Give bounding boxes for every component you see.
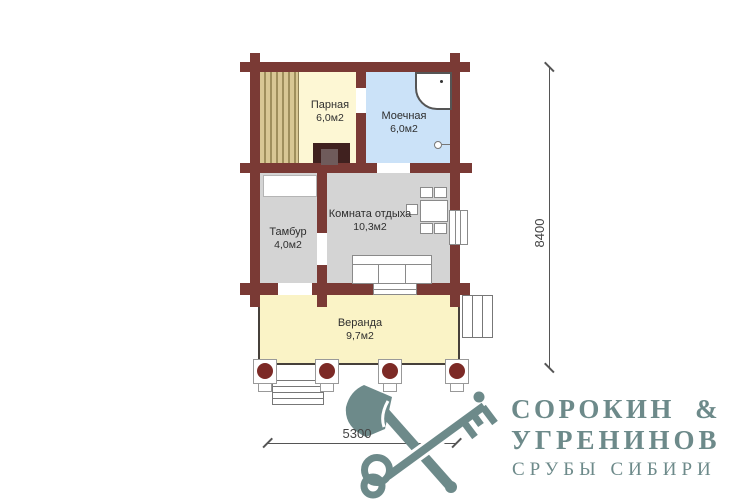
room-name: Комната отдыха bbox=[310, 208, 430, 221]
logo-tagline: СРУБЫ СИБИРИ bbox=[512, 459, 716, 481]
room-label-parnaya: Парная 6,0м2 bbox=[290, 99, 370, 125]
tambur-closet bbox=[263, 175, 317, 197]
drain-pipe-line bbox=[442, 144, 450, 145]
dimension-value-vertical: 8400 bbox=[532, 203, 546, 263]
window-komnata-right bbox=[449, 210, 468, 245]
door-moechnaya-komnata bbox=[377, 163, 410, 173]
room-label-komnata: Комната отдыха 10,3м2 bbox=[310, 208, 430, 234]
room-area: 6,0м2 bbox=[364, 123, 444, 136]
room-name: Веранда bbox=[320, 317, 400, 330]
veranda-column-2-post bbox=[319, 363, 335, 379]
wall-bottom bbox=[240, 283, 470, 295]
window-komnata-veranda bbox=[373, 283, 417, 295]
veranda-column-1-post bbox=[257, 363, 273, 379]
floor-drain bbox=[434, 141, 442, 149]
wall-middle bbox=[240, 163, 472, 173]
wall-top bbox=[240, 62, 470, 72]
steps-side-3 bbox=[482, 295, 493, 338]
room-label-moechnaya: Моечная 6,0м2 bbox=[364, 110, 444, 136]
room-area: 4,0м2 bbox=[248, 239, 328, 252]
shower-head-dot bbox=[440, 80, 443, 83]
veranda-column-2-tab bbox=[320, 383, 334, 392]
veranda-column-4-post bbox=[449, 363, 465, 379]
logo-name-line1: СОРОКИН & bbox=[511, 394, 721, 425]
wall-left bbox=[250, 53, 260, 307]
logo-icon bbox=[338, 383, 523, 502]
sofa bbox=[352, 255, 432, 284]
logo-name-line2: УГРЕНИНОВ bbox=[511, 425, 721, 456]
veranda-column-3-post bbox=[382, 363, 398, 379]
room-name: Моечная bbox=[364, 110, 444, 123]
room-label-veranda: Веранда 9,7м2 bbox=[320, 317, 400, 343]
room-area: 9,7м2 bbox=[320, 330, 400, 343]
steps-front-4 bbox=[272, 398, 324, 405]
room-area: 6,0м2 bbox=[290, 112, 370, 125]
chair-2 bbox=[434, 187, 447, 198]
sauna-stove-firebox bbox=[321, 149, 338, 165]
dimension-value-horizontal: 5300 bbox=[327, 426, 387, 441]
room-area: 10,3м2 bbox=[310, 221, 430, 234]
chair-4 bbox=[434, 223, 447, 234]
veranda-column-1-tab bbox=[258, 383, 272, 392]
floor-plan-canvas: Парная 6,0м2 Моечная 6,0м2 Тамбур 4,0м2 … bbox=[0, 0, 753, 502]
door-tambur-veranda bbox=[278, 283, 312, 295]
chair-1 bbox=[420, 187, 433, 198]
room-name: Парная bbox=[290, 99, 370, 112]
dimension-line-vertical bbox=[549, 67, 550, 368]
